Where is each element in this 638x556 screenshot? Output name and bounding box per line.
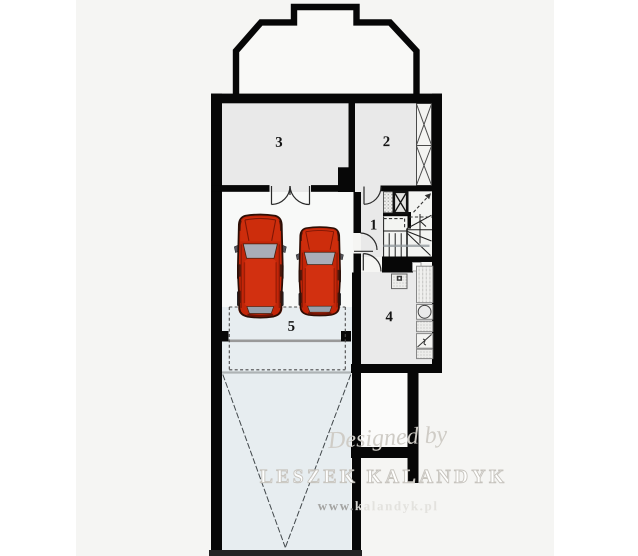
svg-text:5: 5	[288, 319, 295, 335]
svg-text:4: 4	[386, 309, 394, 325]
svg-text:2: 2	[383, 134, 390, 150]
svg-text:LESZEK KALANDYK: LESZEK KALANDYK	[260, 467, 508, 488]
svg-text:1: 1	[370, 217, 377, 233]
svg-text:www.kalandyk.pl: www.kalandyk.pl	[318, 498, 439, 513]
svg-text:3: 3	[275, 135, 282, 151]
